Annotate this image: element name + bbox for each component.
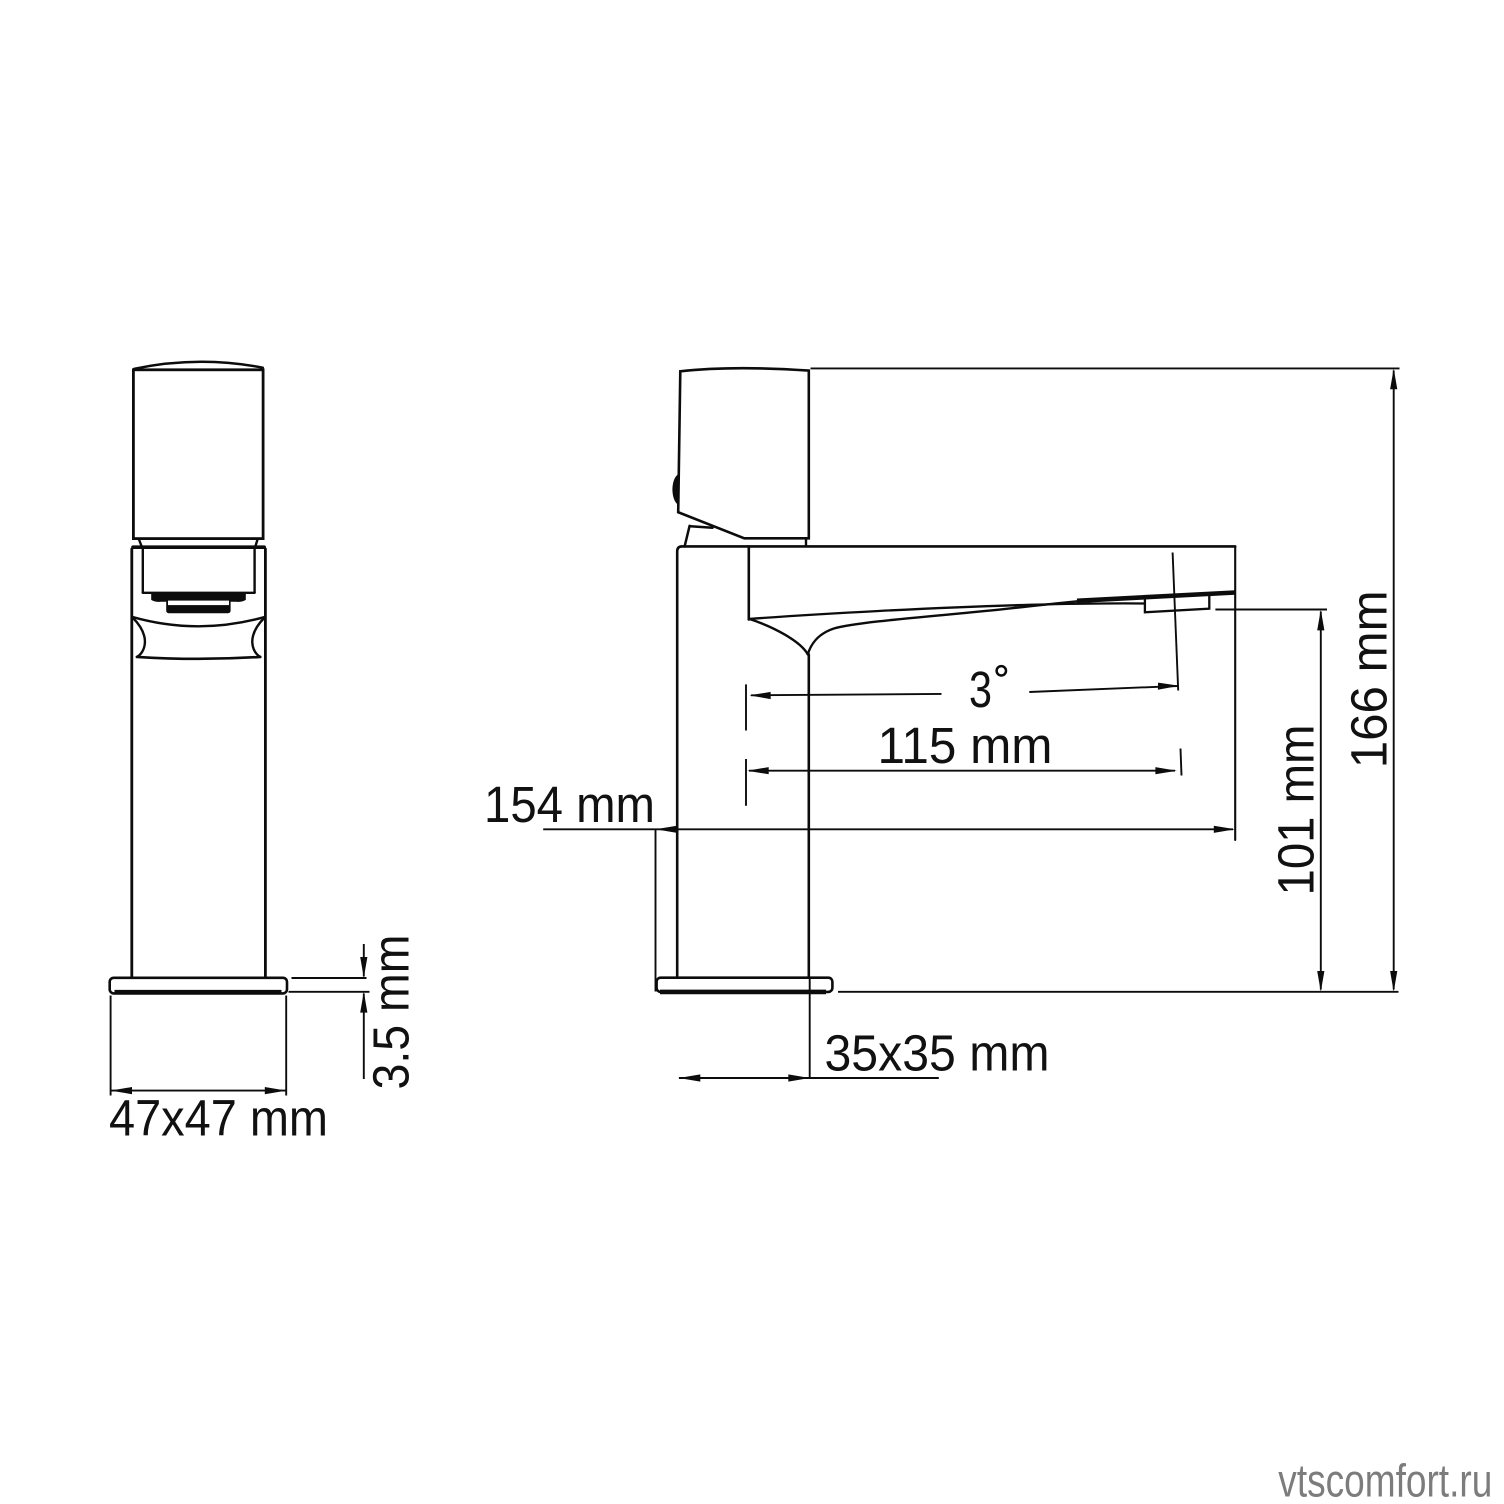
svg-text:3: 3 — [969, 661, 992, 718]
svg-text:115 mm: 115 mm — [878, 717, 1053, 774]
svg-text:101 mm: 101 mm — [1268, 725, 1325, 896]
svg-text:166 mm: 166 mm — [1341, 590, 1398, 768]
svg-text:154 mm: 154 mm — [484, 776, 655, 833]
svg-text:47x47 mm: 47x47 mm — [109, 1090, 328, 1147]
svg-text:vtscomfort.ru: vtscomfort.ru — [1278, 1455, 1492, 1504]
svg-text:35x35 mm: 35x35 mm — [825, 1025, 1050, 1082]
svg-text:3.5 mm: 3.5 mm — [363, 935, 420, 1090]
